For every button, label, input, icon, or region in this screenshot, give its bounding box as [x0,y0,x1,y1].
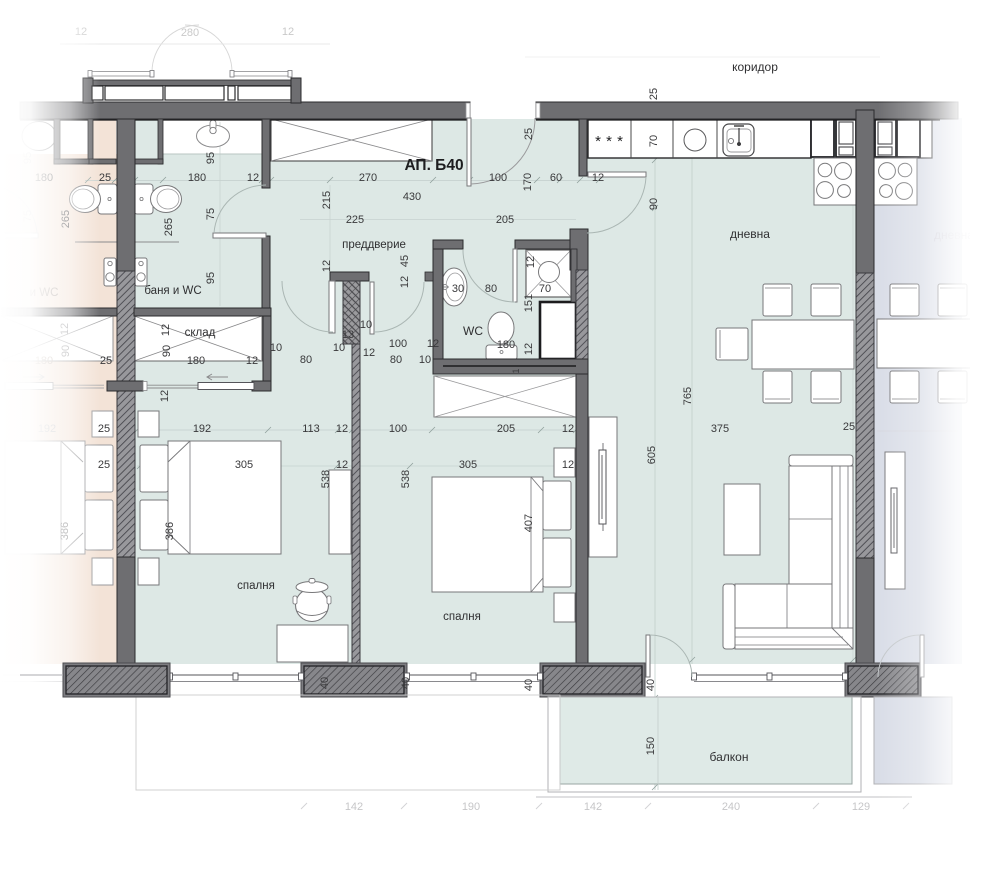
svg-text:225: 225 [346,214,364,226]
svg-text:80: 80 [390,354,402,366]
svg-text:12: 12 [246,355,258,367]
svg-text:95: 95 [205,272,217,284]
svg-text:205: 205 [497,423,515,435]
svg-text:40: 40 [400,677,412,689]
svg-text:12: 12 [399,276,411,288]
svg-text:12: 12 [282,26,294,38]
svg-text:100: 100 [389,338,407,350]
svg-text:25: 25 [100,355,112,367]
svg-text:25: 25 [648,88,660,100]
svg-text:12: 12 [160,324,172,336]
svg-text:10: 10 [270,342,282,354]
svg-text:*: * [606,133,612,150]
svg-text:151: 151 [523,294,535,312]
svg-text:80: 80 [485,283,497,295]
svg-text:*: * [617,133,623,150]
svg-text:305: 305 [235,459,253,471]
svg-text:142: 142 [584,801,602,813]
svg-text:12: 12 [336,423,348,435]
svg-text:преддверие: преддверие [342,239,406,251]
svg-text:150: 150 [645,737,657,755]
svg-text:12: 12 [247,172,259,184]
svg-text:40: 40 [319,677,331,689]
svg-text:балкон: балкон [710,750,749,764]
svg-text:192: 192 [193,423,211,435]
svg-text:13: 13 [342,329,354,341]
svg-text:12: 12 [159,390,171,402]
svg-text:265: 265 [163,218,175,236]
svg-text:70: 70 [648,135,660,147]
svg-text:40: 40 [523,679,535,691]
svg-text:12: 12 [562,459,574,471]
svg-text:12: 12 [427,338,439,350]
svg-text:коридор: коридор [732,60,778,74]
svg-text:12: 12 [336,459,348,471]
svg-text:10: 10 [333,342,345,354]
svg-text:25: 25 [843,421,855,433]
svg-text:765: 765 [682,387,694,405]
svg-text:70: 70 [539,283,551,295]
svg-text:40: 40 [645,679,657,691]
svg-text:180: 180 [497,339,515,351]
svg-text:240: 240 [722,801,740,813]
svg-text:WC: WC [463,324,483,338]
svg-text:386: 386 [164,522,176,540]
svg-text:100: 100 [489,172,507,184]
svg-text:605: 605 [646,446,658,464]
svg-text:спалня: спалня [237,580,275,592]
svg-text:45: 45 [399,255,411,267]
svg-text:12: 12 [562,423,574,435]
svg-text:12: 12 [592,172,604,184]
svg-text:25: 25 [99,172,111,184]
svg-text:25: 25 [523,128,535,140]
svg-text:60: 60 [550,172,562,184]
svg-text:407: 407 [523,514,535,532]
svg-text:75: 75 [205,208,217,220]
svg-text:113: 113 [302,423,320,435]
svg-text:90: 90 [648,198,660,210]
svg-text:180: 180 [188,172,206,184]
svg-text:АП. Б40: АП. Б40 [404,157,463,174]
svg-text:100: 100 [389,423,407,435]
svg-text:12: 12 [363,347,375,359]
svg-text:170: 170 [522,173,534,191]
svg-text:129: 129 [852,801,870,813]
svg-text:*: * [595,133,601,150]
svg-text:205: 205 [496,214,514,226]
svg-text:30: 30 [452,283,464,295]
svg-text:спалня: спалня [443,611,481,623]
svg-text:190: 190 [462,801,480,813]
svg-text:90: 90 [161,345,173,357]
svg-text:538: 538 [320,470,332,488]
svg-text:дневна: дневна [730,227,770,241]
svg-text:305: 305 [459,459,477,471]
svg-text:95: 95 [205,152,217,164]
svg-text:270: 270 [359,172,377,184]
svg-text:10: 10 [419,354,431,366]
svg-text:12: 12 [525,256,537,268]
svg-text:538: 538 [400,470,412,488]
svg-text:430: 430 [403,191,421,203]
svg-text:142: 142 [345,801,363,813]
svg-text:80: 80 [300,354,312,366]
svg-text:10: 10 [360,319,372,331]
svg-text:1: 1 [511,368,521,373]
svg-text:12: 12 [321,260,333,272]
svg-text:склад: склад [185,327,216,339]
svg-text:375: 375 [711,423,729,435]
svg-text:180: 180 [187,355,205,367]
svg-text:280: 280 [181,27,199,39]
svg-text:баня и WC: баня и WC [144,285,201,297]
svg-text:12: 12 [523,343,535,355]
svg-text:215: 215 [321,191,333,209]
